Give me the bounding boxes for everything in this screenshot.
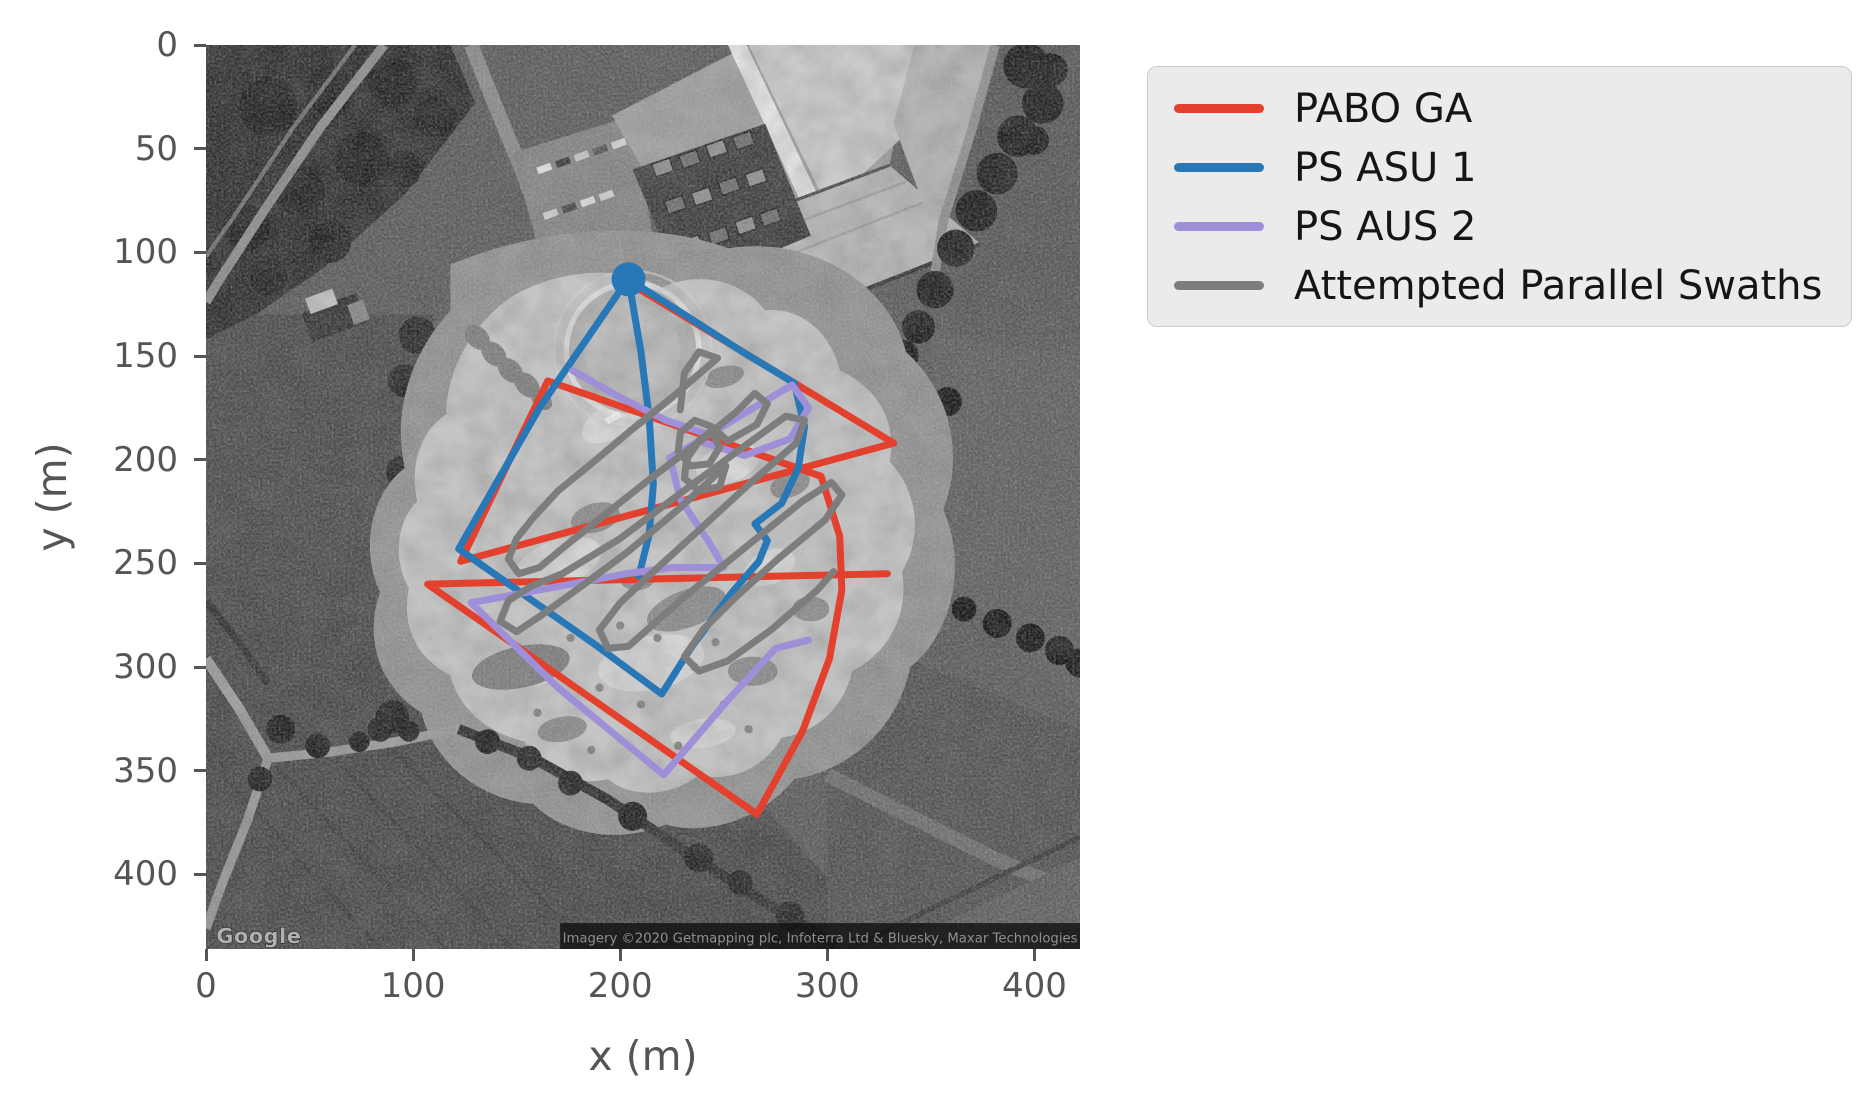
y-tick-mark (194, 769, 206, 772)
y-tick-label: 0 (58, 25, 178, 65)
y-tick-mark (194, 562, 206, 565)
imagery-attribution: Imagery ©2020 Getmapping plc, Infoterra … (563, 931, 1078, 946)
x-tick-mark (826, 949, 829, 961)
y-tick-mark (194, 666, 206, 669)
y-tick-label: 100 (58, 232, 178, 272)
legend-line-swatch (1174, 163, 1264, 172)
y-tick-label: 400 (58, 854, 178, 894)
y-tick-mark (194, 251, 206, 254)
x-tick-label: 200 (550, 966, 690, 1006)
legend-item: PS ASU 1 (1174, 138, 1851, 197)
y-tick-label: 50 (58, 129, 178, 169)
legend-item-label: Attempted Parallel Swaths (1294, 263, 1822, 309)
x-tick-label: 0 (136, 966, 276, 1006)
y-tick-label: 300 (58, 647, 178, 687)
y-tick-mark (194, 458, 206, 461)
x-tick-mark (412, 949, 415, 961)
legend-item: PABO GA (1174, 79, 1851, 138)
legend-line-swatch (1174, 104, 1264, 113)
x-tick-label: 300 (757, 966, 897, 1006)
legend-item: Attempted Parallel Swaths (1174, 256, 1851, 315)
legend: PABO GAPS ASU 1PS AUS 2Attempted Paralle… (1147, 66, 1852, 327)
x-tick-label: 100 (343, 966, 483, 1006)
y-tick-mark (194, 873, 206, 876)
x-tick-mark (1033, 949, 1036, 961)
legend-item-label: PS ASU 1 (1294, 145, 1476, 191)
satellite-basemap (206, 45, 1080, 949)
y-tick-mark (194, 44, 206, 47)
google-watermark: Google (216, 924, 301, 948)
legend-item: PS AUS 2 (1174, 197, 1851, 256)
y-tick-label: 150 (58, 336, 178, 376)
figure: Imagery ©2020 Getmapping plc, Infoterra … (0, 0, 1874, 1117)
x-tick-mark (619, 949, 622, 961)
x-axis-label: x (m) (206, 1032, 1080, 1080)
y-axis-label: y (m) (26, 387, 78, 607)
y-tick-label: 350 (58, 751, 178, 791)
legend-item-label: PABO GA (1294, 86, 1472, 132)
x-tick-mark (205, 949, 208, 961)
start-marker (611, 262, 645, 296)
y-tick-mark (194, 147, 206, 150)
x-tick-label: 400 (964, 966, 1104, 1006)
y-tick-mark (194, 355, 206, 358)
legend-item-label: PS AUS 2 (1294, 204, 1476, 250)
legend-line-swatch (1174, 222, 1264, 231)
satellite-map: Imagery ©2020 Getmapping plc, Infoterra … (206, 45, 1080, 949)
legend-line-swatch (1174, 281, 1264, 290)
